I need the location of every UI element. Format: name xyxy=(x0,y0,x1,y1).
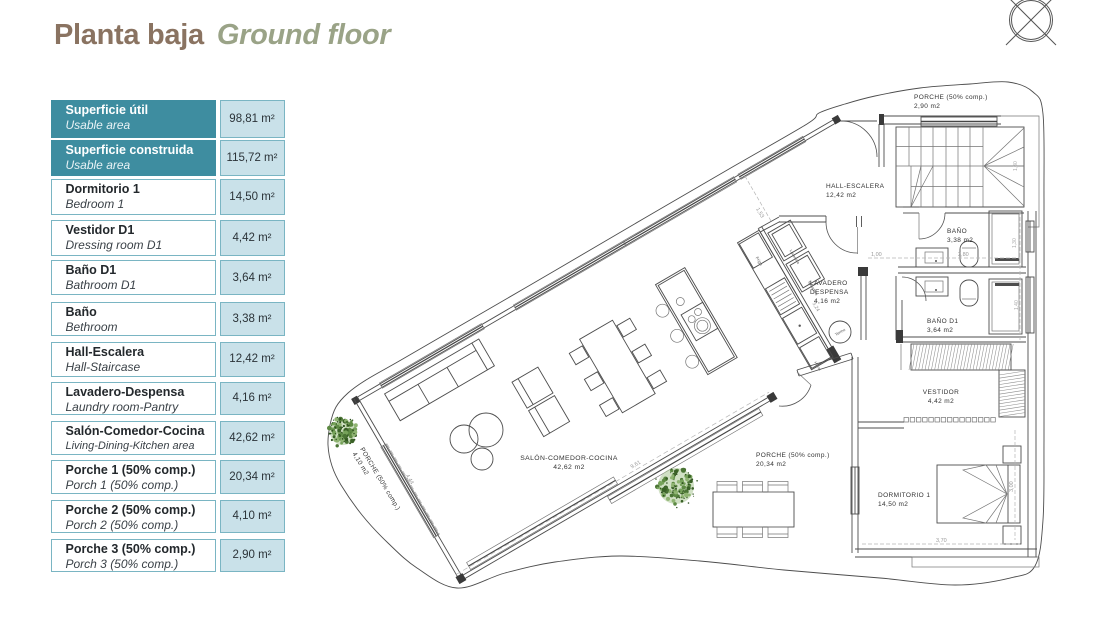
svg-text:12,42 m2: 12,42 m2 xyxy=(826,192,856,199)
svg-text:4,16 m2: 4,16 m2 xyxy=(814,298,840,305)
svg-text:1,40: 1,40 xyxy=(1014,300,1020,310)
svg-text:1,53: 1,53 xyxy=(754,207,765,219)
svg-text:2,80: 2,80 xyxy=(958,252,969,258)
svg-text:PORCHE (50% comp.): PORCHE (50% comp.) xyxy=(756,452,830,459)
svg-text:HALL-ESCALERA: HALL-ESCALERA xyxy=(826,183,885,190)
svg-text:42,62 m2: 42,62 m2 xyxy=(553,464,585,471)
svg-text:Frigo: Frigo xyxy=(755,256,765,267)
svg-text:VESTIDOR: VESTIDOR xyxy=(923,389,959,396)
svg-text:3,70: 3,70 xyxy=(936,538,947,544)
svg-text:1,00: 1,00 xyxy=(871,252,882,258)
svg-text:14,50 m2: 14,50 m2 xyxy=(878,501,908,508)
svg-text:9,61: 9,61 xyxy=(630,460,642,471)
svg-text:PORCHE (50% comp.): PORCHE (50% comp.) xyxy=(358,446,401,511)
svg-text:Termo: Termo xyxy=(834,327,847,337)
svg-text:LAVADERO: LAVADERO xyxy=(810,280,848,287)
svg-text:BAÑO D1: BAÑO D1 xyxy=(927,316,958,325)
svg-text:DESPENSA: DESPENSA xyxy=(810,289,849,296)
svg-text:1,30: 1,30 xyxy=(1013,161,1019,171)
svg-text:PORCHE (50% comp.): PORCHE (50% comp.) xyxy=(914,94,988,101)
svg-text:4,42 m2: 4,42 m2 xyxy=(928,398,954,405)
svg-text:1,30: 1,30 xyxy=(1012,238,1018,248)
svg-text:SALÓN-COMEDOR-COCINA: SALÓN-COMEDOR-COCINA xyxy=(520,453,618,462)
svg-text:2,90 m2: 2,90 m2 xyxy=(914,103,940,110)
svg-text:BAÑO: BAÑO xyxy=(947,226,967,235)
svg-text:3,64 m2: 3,64 m2 xyxy=(927,327,953,334)
svg-text:DORMITORIO 1: DORMITORIO 1 xyxy=(878,492,930,499)
svg-text:3,00: 3,00 xyxy=(1009,481,1015,492)
svg-text:20,34 m2: 20,34 m2 xyxy=(756,461,786,468)
svg-text:3,38 m2: 3,38 m2 xyxy=(947,237,973,244)
